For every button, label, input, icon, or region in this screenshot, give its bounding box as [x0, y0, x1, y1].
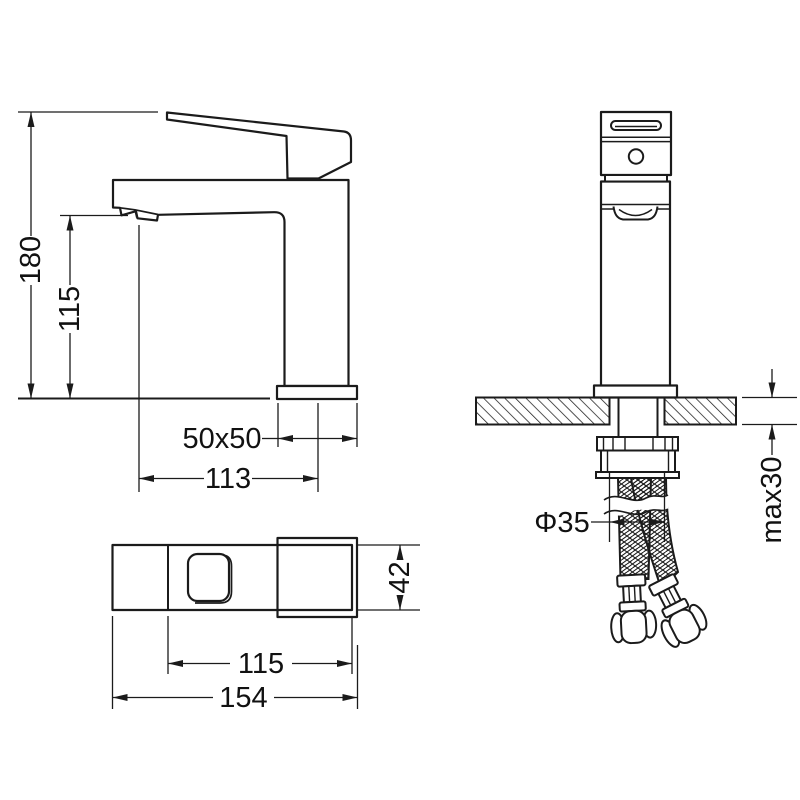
dim-label-overall-length: 154: [219, 682, 267, 714]
side-view: 180 115 50x50: [15, 112, 357, 495]
dim-label-body-width: 42: [384, 561, 416, 593]
nut-hex-flange: [597, 437, 678, 451]
dim-label-spout-reach: 113: [205, 463, 251, 495]
front-view: Φ35 max30: [476, 112, 797, 651]
arrowhead-right: [343, 694, 358, 701]
arrowhead-right: [337, 660, 352, 667]
arrowhead-down: [67, 384, 74, 399]
top-view-faucet: [113, 538, 358, 617]
arrowhead-up: [28, 112, 35, 127]
dimension-body-width: 42: [384, 545, 416, 610]
technical-drawing-canvas: 180 115 50x50: [0, 0, 800, 800]
dim-label-spout-height: 115: [54, 286, 86, 332]
arrowhead-right: [303, 475, 318, 482]
hose-left: [618, 478, 651, 579]
countertop-hatched-left: [476, 398, 610, 425]
countertop-hatched-right: [665, 398, 737, 425]
faucet-spout-body: [113, 180, 349, 386]
arrowhead-right: [342, 435, 357, 442]
dimension-spout-reach: 113: [139, 463, 318, 495]
mounting-nut: [596, 437, 679, 478]
faucet-base-plate-side: [277, 386, 357, 399]
neck-band: [605, 175, 667, 182]
spout-mouth: [614, 207, 658, 220]
handle-pin-hole: [629, 149, 643, 163]
dim-label-counter-thickness: max30: [756, 456, 788, 543]
dim-label-handle-length: 115: [238, 648, 284, 680]
countertop-section: [476, 398, 736, 438]
arrowhead-up: [67, 216, 74, 231]
arrowhead-left: [113, 694, 128, 701]
drawing-page: 180 115 50x50: [0, 0, 800, 800]
arrowhead-left: [168, 660, 183, 667]
hose-end-fitting-left: [609, 574, 657, 644]
side-view-faucet: [18, 113, 357, 400]
dimension-handle-length: 115: [168, 648, 352, 680]
dim-label-hole-diameter: Φ35: [534, 507, 589, 539]
arrowhead-left: [610, 519, 625, 526]
dimension-base-size: 50x50: [182, 423, 357, 455]
top-view: 42 115 154: [113, 538, 421, 714]
dimension-total-height: 180: [15, 112, 47, 399]
arrowhead-up: [397, 545, 404, 560]
faucet-base-plate-front: [594, 386, 677, 398]
arrowhead-left: [139, 475, 154, 482]
arrowhead-down: [28, 384, 35, 399]
arrowhead-up: [769, 425, 776, 440]
dimension-overall-length: 154: [113, 682, 358, 714]
arrowhead-left: [278, 435, 293, 442]
hose-end-fitting-right: [641, 570, 712, 651]
handle-slot: [611, 121, 661, 130]
arrowhead-down: [397, 595, 404, 610]
dim-label-base-size: 50x50: [182, 423, 261, 455]
faucet-handle-lever: [167, 113, 351, 179]
supply-hoses: [604, 478, 712, 651]
dim-label-total-height: 180: [15, 236, 47, 284]
dimension-counter-thickness: max30: [742, 369, 797, 544]
handle-cutout: [188, 554, 229, 601]
front-view-faucet: [594, 112, 677, 398]
dimension-spout-height: 115: [54, 216, 86, 399]
nut-lower-body: [601, 451, 675, 473]
arrowhead-down: [769, 383, 776, 398]
